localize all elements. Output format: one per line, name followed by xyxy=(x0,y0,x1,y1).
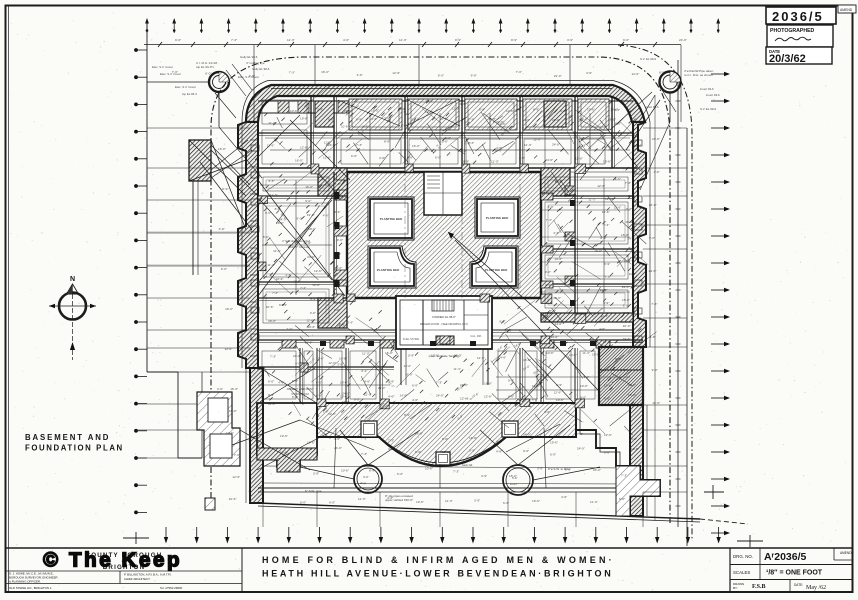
svg-text:19'-6″: 19'-6″ xyxy=(623,337,632,341)
svg-text:S.V. EL 99-9: S.V. EL 99-9 xyxy=(640,57,656,61)
svg-text:4'-6″: 4'-6″ xyxy=(343,38,350,42)
svg-text:19'-6″: 19'-6″ xyxy=(602,210,611,214)
svg-text:10'-6″: 10'-6″ xyxy=(226,431,235,435)
svg-text:9'-0″: 9'-0″ xyxy=(545,270,552,274)
svg-text:4'-6″: 4'-6″ xyxy=(268,179,275,183)
svg-text:24'-0″: 24'-0″ xyxy=(627,404,635,408)
svg-text:9'-0″: 9'-0″ xyxy=(337,238,344,242)
svg-text:7'-3″: 7'-3″ xyxy=(356,143,363,147)
svg-text:4'-6″: 4'-6″ xyxy=(500,355,507,359)
svg-text:6'-0″: 6'-0″ xyxy=(351,154,358,158)
svg-text:& PLANNING OFFICER.: & PLANNING OFFICER. xyxy=(9,580,41,584)
svg-text:24'-0″: 24'-0″ xyxy=(552,118,561,122)
svg-text:8'-9″: 8'-9″ xyxy=(479,107,486,111)
svg-text:8'-9″: 8'-9″ xyxy=(533,108,540,112)
svg-text:12'-6″: 12'-6″ xyxy=(498,122,506,126)
svg-text:4'-6″: 4'-6″ xyxy=(307,447,314,451)
svg-text:19'-6″: 19'-6″ xyxy=(544,311,552,315)
svg-text:24'-0″: 24'-0″ xyxy=(334,446,343,450)
svg-text:4'-6″: 4'-6″ xyxy=(412,398,419,402)
svg-text:4″ rodding eye: 4″ rodding eye xyxy=(246,61,265,65)
svg-text:10'-6″: 10'-6″ xyxy=(266,305,275,309)
svg-text:7'-3″: 7'-3″ xyxy=(603,223,610,227)
svg-text:8'-9″: 8'-9″ xyxy=(628,246,635,250)
svg-text:7'-3″: 7'-3″ xyxy=(453,470,460,474)
svg-text:7'-3″: 7'-3″ xyxy=(287,327,293,331)
svg-text:Gully EL 98-6: Gully EL 98-6 xyxy=(240,55,258,59)
svg-text:24'-0″: 24'-0″ xyxy=(577,447,586,451)
svg-text:4'-6″: 4'-6″ xyxy=(496,450,503,454)
svg-text:16'-0″: 16'-0″ xyxy=(469,436,478,440)
svg-text:CHIEF ARCHITECT.: CHIEF ARCHITECT. xyxy=(124,577,151,581)
svg-text:24'-0″: 24'-0″ xyxy=(580,117,589,121)
svg-text:4'-6″: 4'-6″ xyxy=(508,395,515,399)
svg-text:8'-9″: 8'-9″ xyxy=(604,262,611,266)
svg-text:12'-6″: 12'-6″ xyxy=(442,450,451,454)
svg-text:16'-0″: 16'-0″ xyxy=(494,148,502,152)
svg-text:12'-6″: 12'-6″ xyxy=(484,395,493,399)
svg-text:24'-0″: 24'-0″ xyxy=(342,391,350,395)
svg-text:8'-9″: 8'-9″ xyxy=(362,124,368,128)
svg-text:back fall: back fall xyxy=(462,463,473,467)
svg-text:top EL 99-3½: top EL 99-3½ xyxy=(196,65,214,69)
svg-text:FUEL STORE: FUEL STORE xyxy=(403,337,419,341)
svg-text:8'-9″: 8'-9″ xyxy=(361,369,367,373)
svg-text:24'-0″: 24'-0″ xyxy=(436,394,445,398)
svg-text:Elec. S.V. Cover: Elec. S.V. Cover xyxy=(160,72,181,76)
svg-text:10'-6″: 10'-6″ xyxy=(555,257,564,261)
svg-text:16'-0″: 16'-0″ xyxy=(321,70,330,74)
svg-text:6'-0″: 6'-0″ xyxy=(329,500,336,504)
svg-text:AMEND: AMEND xyxy=(840,8,853,12)
svg-text:11'-3″: 11'-3″ xyxy=(582,351,589,355)
svg-text:24'-0″: 24'-0″ xyxy=(593,468,602,472)
svg-text:24'-0″: 24'-0″ xyxy=(279,218,287,222)
svg-text:12'-6″: 12'-6″ xyxy=(533,138,541,142)
svg-text:4'-6″: 4'-6″ xyxy=(217,387,224,391)
svg-text:3'-9″: 3'-9″ xyxy=(537,467,544,471)
svg-text:deep: deep xyxy=(360,481,367,485)
svg-text:PLANTING BED: PLANTING BED xyxy=(486,216,509,220)
svg-text:9'-0″: 9'-0″ xyxy=(623,38,630,42)
svg-text:19'-6″: 19'-6″ xyxy=(587,108,596,112)
svg-text:4'-6″: 4'-6″ xyxy=(496,440,503,444)
svg-text:7'-3″: 7'-3″ xyxy=(651,302,658,306)
svg-text:4'-0″: 4'-0″ xyxy=(363,475,369,479)
svg-text:May /62: May /62 xyxy=(806,585,826,591)
svg-text:3'-9″: 3'-9″ xyxy=(522,126,528,130)
svg-text:8'-9″: 8'-9″ xyxy=(404,413,410,417)
svg-text:PHOTOGRAPHED: PHOTOGRAPHED xyxy=(770,28,815,34)
svg-text:16'-0″: 16'-0″ xyxy=(295,159,304,163)
svg-text:BASEMENT AND: BASEMENT AND xyxy=(25,433,110,442)
svg-text:11'-3″: 11'-3″ xyxy=(629,272,638,276)
svg-text:4'-6″: 4'-6″ xyxy=(519,156,526,160)
svg-text:6'-0″: 6'-0″ xyxy=(435,155,442,159)
svg-text:9'-0″: 9'-0″ xyxy=(584,375,590,379)
svg-text:FORMED EL 88-6″: FORMED EL 88-6″ xyxy=(432,315,456,319)
svg-text:12'-6″: 12'-6″ xyxy=(505,328,513,332)
svg-text:9'-0″: 9'-0″ xyxy=(297,217,303,221)
svg-text:10'-6″: 10'-6″ xyxy=(293,279,301,283)
svg-text:7'-3″: 7'-3″ xyxy=(625,181,632,185)
svg-text:24'-0″: 24'-0″ xyxy=(555,322,564,326)
svg-text:12'-6″: 12'-6″ xyxy=(575,156,584,160)
svg-text:9'-0″: 9'-0″ xyxy=(523,449,530,453)
svg-text:16'-0″: 16'-0″ xyxy=(412,144,421,148)
svg-text:9'-0″: 9'-0″ xyxy=(438,73,445,77)
svg-text:11'-3″: 11'-3″ xyxy=(273,249,282,253)
svg-text:10'-6″: 10'-6″ xyxy=(546,351,555,355)
svg-text:N: N xyxy=(70,276,75,283)
svg-text:16'-0″: 16'-0″ xyxy=(546,192,555,196)
svg-text:12'-6″: 12'-6″ xyxy=(554,391,562,395)
svg-text:6″ S.W. pipe: 6″ S.W. pipe xyxy=(305,489,322,493)
svg-text:4'-6″: 4'-6″ xyxy=(334,437,341,441)
svg-text:12'-6″: 12'-6″ xyxy=(314,269,323,273)
svg-text:10'-6″: 10'-6″ xyxy=(341,468,350,472)
svg-text:11'-3″: 11'-3″ xyxy=(287,38,296,42)
svg-text:6'-0″: 6'-0″ xyxy=(397,472,404,476)
svg-text:F.S.B: F.S.B xyxy=(752,584,765,590)
svg-text:19'-6″: 19'-6″ xyxy=(622,285,631,289)
svg-text:19'-6″: 19'-6″ xyxy=(604,384,613,388)
svg-text:4'-6″: 4'-6″ xyxy=(654,170,661,174)
svg-text:20/3/62: 20/3/62 xyxy=(769,53,806,65)
svg-text:16'-0″: 16'-0″ xyxy=(405,373,413,377)
svg-text:19'-6″: 19'-6″ xyxy=(489,117,497,121)
svg-text:24'-0″: 24'-0″ xyxy=(268,402,276,406)
svg-text:16'-0″: 16'-0″ xyxy=(229,409,238,413)
svg-text:10'-6″: 10'-6″ xyxy=(556,398,565,402)
svg-text:24'-0″: 24'-0″ xyxy=(400,394,408,398)
svg-text:11'-3″: 11'-3″ xyxy=(399,38,408,42)
svg-text:6'-0″: 6'-0″ xyxy=(221,267,228,271)
svg-text:24'-0″: 24'-0″ xyxy=(404,364,412,368)
svg-text:12'-6″: 12'-6″ xyxy=(597,184,606,188)
svg-text:invert 93-6: invert 93-6 xyxy=(706,93,720,97)
svg-text:6'-0″: 6'-0″ xyxy=(412,384,419,388)
svg-text:10'-6″: 10'-6″ xyxy=(586,166,594,170)
svg-text:11'-3″: 11'-3″ xyxy=(491,159,500,163)
svg-text:4'-6″: 4'-6″ xyxy=(371,117,377,121)
svg-text:19'-6″: 19'-6″ xyxy=(300,116,309,120)
svg-text:16'-0″: 16'-0″ xyxy=(652,401,661,405)
svg-text:invert 93-6: invert 93-6 xyxy=(700,87,714,91)
svg-text:4'-6″: 4'-6″ xyxy=(387,496,394,500)
svg-text:3'-9″: 3'-9″ xyxy=(586,71,593,75)
svg-text:Aʳ2036/5: Aʳ2036/5 xyxy=(764,551,807,563)
svg-text:9'-0″: 9'-0″ xyxy=(508,378,515,382)
svg-text:24'-0″: 24'-0″ xyxy=(554,74,563,78)
svg-text:7'-3″: 7'-3″ xyxy=(436,381,443,385)
svg-text:7'-3″: 7'-3″ xyxy=(467,397,473,401)
svg-text:16'-0″: 16'-0″ xyxy=(425,99,433,103)
svg-text:12'-6″: 12'-6″ xyxy=(328,412,336,416)
svg-text:8'-9″: 8'-9″ xyxy=(659,71,666,75)
svg-text:7'-3″: 7'-3″ xyxy=(300,286,306,290)
svg-text:4'-6″: 4'-6″ xyxy=(364,380,371,384)
svg-text:11'-3″: 11'-3″ xyxy=(588,197,595,201)
svg-text:FOUNDATION PLAN: FOUNDATION PLAN xyxy=(25,444,124,453)
svg-text:16'-0″: 16'-0″ xyxy=(623,324,632,328)
svg-text:12'-6″: 12'-6″ xyxy=(225,347,234,351)
svg-text:9'-0″: 9'-0″ xyxy=(544,410,550,414)
svg-text:7'-3″: 7'-3″ xyxy=(289,71,296,75)
svg-text:3'-9″: 3'-9″ xyxy=(334,210,341,214)
svg-text:16'-0″: 16'-0″ xyxy=(268,319,277,323)
svg-text:24'-0″: 24'-0″ xyxy=(337,324,345,328)
svg-text:19'-6″: 19'-6″ xyxy=(592,353,601,357)
svg-text:6'-0″: 6'-0″ xyxy=(565,468,572,472)
svg-text:12'-6″: 12'-6″ xyxy=(267,144,275,148)
svg-text:9'-0″: 9'-0″ xyxy=(328,117,335,121)
svg-text:3'-9″: 3'-9″ xyxy=(219,227,226,231)
svg-text:3'-9″: 3'-9″ xyxy=(388,447,395,451)
svg-text:16'-0″: 16'-0″ xyxy=(342,400,350,404)
svg-text:8'-9″: 8'-9″ xyxy=(263,235,270,239)
svg-text:6'-0″: 6'-0″ xyxy=(619,497,626,501)
svg-text:11'-3″: 11'-3″ xyxy=(268,121,275,125)
svg-text:9'-0″: 9'-0″ xyxy=(471,74,478,78)
svg-text:8'-9″: 8'-9″ xyxy=(511,38,518,42)
svg-text:6'-0″: 6'-0″ xyxy=(465,142,471,146)
svg-text:12'-6″: 12'-6″ xyxy=(306,319,314,323)
svg-text:10'-6″: 10'-6″ xyxy=(276,277,285,281)
svg-text:HOME FOR BLIND & INFIRM AG: HOME FOR BLIND & INFIRM AGED MEN & WOMEN… xyxy=(262,555,615,565)
svg-text:DATE:: DATE: xyxy=(794,583,803,587)
svg-text:19'-6″: 19'-6″ xyxy=(550,441,559,445)
svg-text:4'-6″: 4'-6″ xyxy=(547,158,554,162)
svg-text:9'-0″: 9'-0″ xyxy=(536,341,542,345)
svg-text:4'-6″: 4'-6″ xyxy=(388,394,395,398)
svg-text:4'-6″: 4'-6″ xyxy=(560,109,567,113)
svg-text:BOILER ROOM · (SEE DRAWING No7: BOILER ROOM · (SEE DRAWING No7) xyxy=(420,322,468,326)
svg-text:12'-6″: 12'-6″ xyxy=(632,72,641,76)
svg-text:16'-0″: 16'-0″ xyxy=(415,432,424,436)
svg-text:7'-3″: 7'-3″ xyxy=(468,118,475,122)
svg-text:OLD STEINE HO., BRIGHTON 1.: OLD STEINE HO., BRIGHTON 1. xyxy=(9,586,52,590)
svg-text:19'-6″: 19'-6″ xyxy=(555,180,563,184)
svg-text:3'-9″: 3'-9″ xyxy=(337,362,343,366)
svg-text:11'-3″: 11'-3″ xyxy=(453,367,460,371)
svg-text:16'-0″: 16'-0″ xyxy=(603,340,612,344)
svg-text:9'-0″: 9'-0″ xyxy=(652,368,659,372)
svg-text:PLANTING BED: PLANTING BED xyxy=(377,268,400,272)
svg-text:7'-3″: 7'-3″ xyxy=(361,436,368,440)
svg-text:10'-6″: 10'-6″ xyxy=(341,124,349,128)
svg-text:19'-6″: 19'-6″ xyxy=(416,500,425,504)
svg-text:7'-3″: 7'-3″ xyxy=(361,452,368,456)
svg-text:6'-0″: 6'-0″ xyxy=(503,501,510,505)
svg-text:9'-0″: 9'-0″ xyxy=(401,124,407,128)
svg-text:19'-6″: 19'-6″ xyxy=(308,227,317,231)
svg-text:6'-0″: 6'-0″ xyxy=(604,396,611,400)
svg-text:12'-6″: 12'-6″ xyxy=(506,109,515,113)
svg-text:12'-6″: 12'-6″ xyxy=(431,353,440,357)
svg-text:9'-0″: 9'-0″ xyxy=(499,320,505,324)
svg-text:7'-3″: 7'-3″ xyxy=(621,474,628,478)
svg-text:3'-9″: 3'-9″ xyxy=(310,311,317,315)
svg-text:11'-3″: 11'-3″ xyxy=(358,497,367,501)
svg-text:3'-9″: 3'-9″ xyxy=(285,469,292,473)
svg-text:6'-0″: 6'-0″ xyxy=(415,450,422,454)
svg-text:6'-0″: 6'-0″ xyxy=(300,500,307,504)
svg-text:Elec. S.V. Cover: Elec. S.V. Cover xyxy=(175,85,196,89)
svg-text:4'-6″: 4'-6″ xyxy=(524,118,531,122)
svg-text:© The Keep: © The Keep xyxy=(43,549,182,572)
svg-text:CAL. RM.: CAL. RM. xyxy=(470,334,482,338)
svg-text:HEATH HILL AVENUE·LOWER BEV: HEATH HILL AVENUE·LOWER BEVENDEAN·BRIGHT… xyxy=(262,569,613,579)
svg-text:11'-3″: 11'-3″ xyxy=(590,500,599,504)
svg-text:8'-9″: 8'-9″ xyxy=(354,398,360,402)
svg-text:10'-6″: 10'-6″ xyxy=(339,357,348,361)
svg-text:24'-0″: 24'-0″ xyxy=(679,38,688,42)
svg-text:4'-6″: 4'-6″ xyxy=(278,380,284,384)
svg-text:8'-9″: 8'-9″ xyxy=(356,118,363,122)
svg-text:SCALES: SCALES xyxy=(733,570,750,575)
svg-text:11'-3″: 11'-3″ xyxy=(324,140,331,144)
svg-text:7'-3″: 7'-3″ xyxy=(577,432,584,436)
svg-text:16'-0″: 16'-0″ xyxy=(230,387,239,391)
svg-text:16'-0″: 16'-0″ xyxy=(509,474,518,478)
svg-text:9'-0″: 9'-0″ xyxy=(175,38,182,42)
svg-text:3'-9″: 3'-9″ xyxy=(469,448,476,452)
svg-text:16'-0″: 16'-0″ xyxy=(312,283,321,287)
svg-text:Gully EL 98-6: Gully EL 98-6 xyxy=(252,67,270,71)
svg-text:7'-3″: 7'-3″ xyxy=(649,236,656,240)
svg-text:24'-0″: 24'-0″ xyxy=(293,354,302,358)
svg-text:19'-6″: 19'-6″ xyxy=(580,384,589,388)
svg-text:10'-6″: 10'-6″ xyxy=(307,441,316,445)
svg-text:7'-3″: 7'-3″ xyxy=(546,218,553,222)
svg-text:10'-6″: 10'-6″ xyxy=(628,383,637,387)
svg-text:16'-0″: 16'-0″ xyxy=(225,307,234,311)
svg-text:¹/8″ = ONE FOOT: ¹/8″ = ONE FOOT xyxy=(766,570,823,577)
svg-text:to C.I. M.H. as shown: to C.I. M.H. as shown xyxy=(684,73,713,77)
svg-text:9'-0″: 9'-0″ xyxy=(305,199,312,203)
svg-text:6'-0″: 6'-0″ xyxy=(205,71,212,75)
svg-text:19'-6″: 19'-6″ xyxy=(603,160,612,164)
svg-text:19'-6″: 19'-6″ xyxy=(484,381,493,385)
svg-text:10'-6″: 10'-6″ xyxy=(229,497,238,501)
svg-text:10'-6″: 10'-6″ xyxy=(290,109,299,113)
svg-text:8'-9″: 8'-9″ xyxy=(222,187,229,191)
svg-text:BY:: BY: xyxy=(733,586,738,590)
svg-text:11'-3″: 11'-3″ xyxy=(270,193,279,197)
svg-text:12'-6″: 12'-6″ xyxy=(604,433,613,437)
svg-text:10'-6″: 10'-6″ xyxy=(316,356,325,360)
svg-text:16'-0″: 16'-0″ xyxy=(622,298,631,302)
svg-text:19'-6″: 19'-6″ xyxy=(594,249,603,253)
svg-text:3'-9″: 3'-9″ xyxy=(357,73,364,77)
svg-text:6'-0″: 6'-0″ xyxy=(519,385,525,389)
svg-text:19'-6″: 19'-6″ xyxy=(458,102,466,106)
svg-text:8'-9″: 8'-9″ xyxy=(335,182,342,186)
svg-text:16'-0″: 16'-0″ xyxy=(305,185,314,189)
svg-text:12'-6″: 12'-6″ xyxy=(328,361,336,365)
svg-text:16'-0″: 16'-0″ xyxy=(628,393,637,397)
svg-text:7'-3″: 7'-3″ xyxy=(516,70,523,74)
svg-text:8'-9″: 8'-9″ xyxy=(275,207,282,211)
svg-text:4'-6″: 4'-6″ xyxy=(379,156,386,160)
svg-text:16'-0″: 16'-0″ xyxy=(218,147,227,151)
svg-text:3'-9″: 3'-9″ xyxy=(317,108,324,112)
svg-text:invert: invert xyxy=(510,482,517,486)
svg-text:12'-6″: 12'-6″ xyxy=(346,321,354,325)
svg-text:6'-0″: 6'-0″ xyxy=(442,437,449,441)
svg-text:6'-0″: 6'-0″ xyxy=(268,380,275,384)
svg-text:19'-6″: 19'-6″ xyxy=(440,139,449,143)
svg-text:11'-3″: 11'-3″ xyxy=(452,106,461,110)
svg-text:6'-0″: 6'-0″ xyxy=(604,451,611,455)
svg-text:11'-3″: 11'-3″ xyxy=(524,143,533,147)
svg-text:24'-0″: 24'-0″ xyxy=(652,137,661,141)
svg-text:8'-9″: 8'-9″ xyxy=(310,297,317,301)
svg-text:11'-3″: 11'-3″ xyxy=(445,499,454,503)
svg-text:19'-6″: 19'-6″ xyxy=(307,213,316,217)
svg-text:16'-0″: 16'-0″ xyxy=(649,203,658,207)
svg-text:top EL 99-3: top EL 99-3 xyxy=(182,92,197,96)
svg-text:6'-0″: 6'-0″ xyxy=(550,453,557,457)
svg-text:12'-6″: 12'-6″ xyxy=(305,341,313,345)
svg-text:6'-0″: 6'-0″ xyxy=(620,368,626,372)
svg-text:DRG. NO.: DRG. NO. xyxy=(733,554,753,559)
svg-text:12'-6″: 12'-6″ xyxy=(303,241,312,245)
svg-text:24'-0″: 24'-0″ xyxy=(378,386,386,390)
svg-text:3'-9″: 3'-9″ xyxy=(474,499,481,503)
svg-text:19'-6″: 19'-6″ xyxy=(610,108,618,112)
svg-text:8'-9″: 8'-9″ xyxy=(603,301,610,305)
svg-text:PLANTING BED: PLANTING BED xyxy=(380,217,403,221)
svg-text:12'-6″: 12'-6″ xyxy=(232,475,241,479)
svg-text:8'-9″: 8'-9″ xyxy=(463,160,470,164)
svg-text:12'-6″: 12'-6″ xyxy=(614,206,622,210)
svg-text:P. BILLINGTON, A.R.I.B.A., A: P. BILLINGTON, A.R.I.B.A., A.M.T.P.I. xyxy=(124,573,172,577)
svg-text:19'-6″: 19'-6″ xyxy=(280,434,289,438)
svg-text:S.V. EL 99-9: S.V. EL 99-9 xyxy=(700,107,716,111)
svg-text:10'-6″: 10'-6″ xyxy=(569,353,578,357)
svg-text:7'-3″: 7'-3″ xyxy=(388,439,395,443)
svg-text:3'-9″: 3'-9″ xyxy=(481,474,488,478)
svg-text:7'-3″: 7'-3″ xyxy=(234,453,241,457)
svg-text:24'-0″: 24'-0″ xyxy=(628,237,636,241)
svg-text:7'-3″: 7'-3″ xyxy=(231,38,238,42)
svg-text:19'-6″: 19'-6″ xyxy=(532,499,541,503)
svg-text:19'-6″: 19'-6″ xyxy=(631,447,640,451)
svg-text:11'-3″: 11'-3″ xyxy=(477,356,486,360)
svg-text:9'-0″: 9'-0″ xyxy=(548,244,555,248)
svg-text:6'-0″: 6'-0″ xyxy=(294,241,300,245)
svg-text:8'-9″: 8'-9″ xyxy=(369,469,376,473)
svg-text:Tel. 27560 26800: Tel. 27560 26800 xyxy=(160,586,183,590)
svg-text:12'-6″: 12'-6″ xyxy=(392,71,401,75)
svg-text:7'-3″: 7'-3″ xyxy=(281,303,287,307)
svg-text:3'-9″: 3'-9″ xyxy=(567,38,574,42)
svg-text:3'-9″: 3'-9″ xyxy=(408,353,415,357)
svg-text:4'-6″: 4'-6″ xyxy=(650,335,657,339)
svg-text:24'-0″: 24'-0″ xyxy=(523,433,532,437)
svg-text:4'-6″: 4'-6″ xyxy=(561,495,568,499)
svg-text:7'-3″: 7'-3″ xyxy=(270,355,277,359)
svg-text:7'-3″: 7'-3″ xyxy=(272,291,279,295)
svg-text:3'-9″: 3'-9″ xyxy=(545,283,552,287)
svg-text:10'-6″: 10'-6″ xyxy=(425,467,434,471)
svg-text:24'-0″: 24'-0″ xyxy=(649,269,658,273)
svg-text:9'-0″: 9'-0″ xyxy=(631,437,638,441)
svg-text:12'-6″: 12'-6″ xyxy=(323,155,332,159)
svg-text:9'-0″: 9'-0″ xyxy=(334,308,341,312)
